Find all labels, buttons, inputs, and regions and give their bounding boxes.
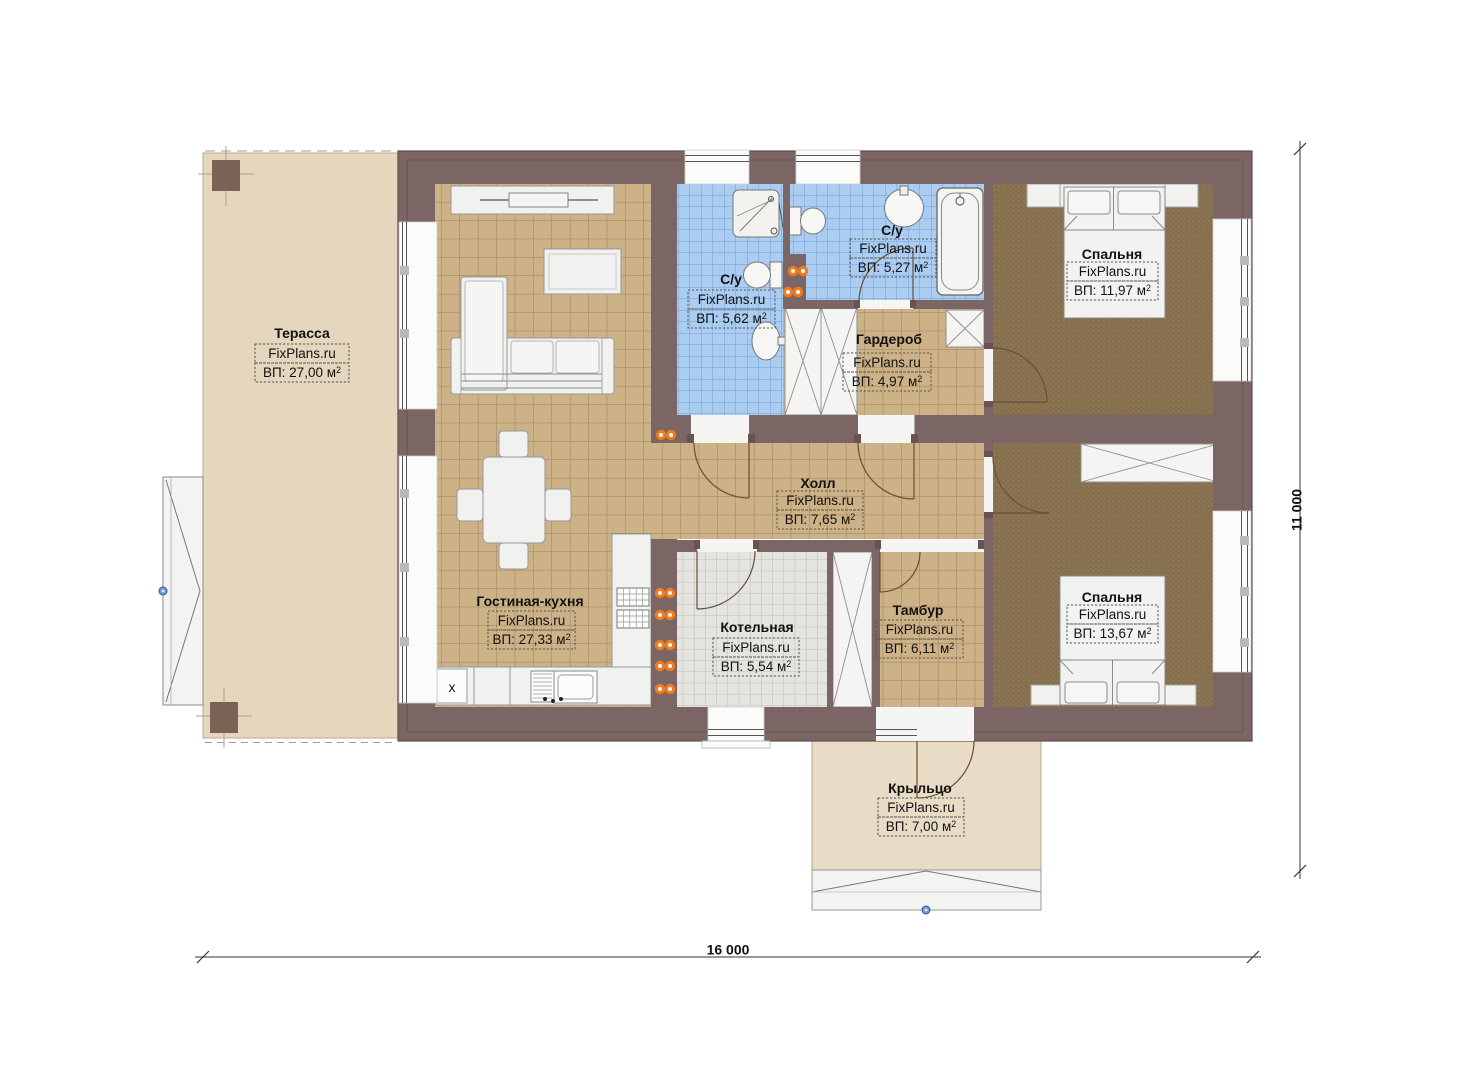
- svg-text:FixPlans.ru: FixPlans.ru: [1079, 607, 1147, 622]
- svg-text:FixPlans.ru: FixPlans.ru: [722, 640, 790, 655]
- svg-text:16 000: 16 000: [707, 942, 750, 958]
- svg-text:ВП: 27,00 м2: ВП: 27,00 м2: [263, 365, 341, 380]
- svg-text:ВП: 5,62 м2: ВП: 5,62 м2: [696, 311, 767, 326]
- svg-text:FixPlans.ru: FixPlans.ru: [786, 493, 854, 508]
- svg-text:ВП: 11,97 м2: ВП: 11,97 м2: [1074, 283, 1151, 298]
- svg-text:ВП: 7,00 м2: ВП: 7,00 м2: [886, 819, 957, 834]
- svg-text:Холл: Холл: [800, 475, 835, 491]
- svg-text:FixPlans.ru: FixPlans.ru: [887, 800, 955, 815]
- svg-text:С/у: С/у: [881, 222, 903, 238]
- svg-text:FixPlans.ru: FixPlans.ru: [853, 355, 921, 370]
- svg-text:Гардероб: Гардероб: [856, 331, 923, 347]
- svg-text:Тамбур: Тамбур: [893, 602, 944, 618]
- svg-text:FixPlans.ru: FixPlans.ru: [886, 622, 954, 637]
- svg-text:11 000: 11 000: [1289, 489, 1305, 531]
- svg-text:Терасса: Терасса: [274, 325, 330, 341]
- svg-text:x: x: [449, 679, 456, 695]
- svg-text:Гостиная-кухня: Гостиная-кухня: [476, 593, 583, 609]
- svg-text:Спальня: Спальня: [1082, 246, 1142, 262]
- svg-text:FixPlans.ru: FixPlans.ru: [859, 241, 927, 256]
- svg-text:Котельная: Котельная: [720, 619, 793, 635]
- svg-text:ВП: 7,65 м2: ВП: 7,65 м2: [785, 512, 856, 527]
- svg-text:С/у: С/у: [720, 271, 742, 287]
- svg-text:FixPlans.ru: FixPlans.ru: [498, 613, 566, 628]
- svg-text:ВП: 4,97 м2: ВП: 4,97 м2: [852, 374, 923, 389]
- svg-text:FixPlans.ru: FixPlans.ru: [698, 292, 766, 307]
- svg-text:Крыльцо: Крыльцо: [888, 780, 952, 796]
- svg-text:ВП: 13,67 м2: ВП: 13,67 м2: [1073, 626, 1151, 641]
- svg-text:FixPlans.ru: FixPlans.ru: [268, 346, 336, 361]
- svg-text:Спальня: Спальня: [1082, 589, 1142, 605]
- svg-text:ВП: 5,54 м2: ВП: 5,54 м2: [721, 659, 792, 674]
- svg-text:ВП: 5,27 м2: ВП: 5,27 м2: [858, 260, 929, 275]
- svg-text:ВП: 6,11 м2: ВП: 6,11 м2: [885, 641, 955, 656]
- svg-text:ВП: 27,33 м2: ВП: 27,33 м2: [492, 632, 570, 647]
- svg-text:FixPlans.ru: FixPlans.ru: [1079, 264, 1147, 279]
